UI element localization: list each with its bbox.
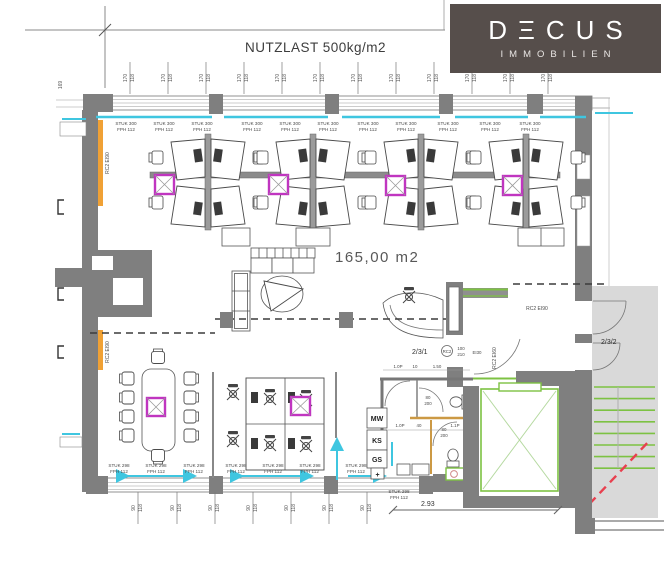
wall-label: FPH 112 — [117, 127, 135, 132]
wall-label: STUK 298 — [183, 463, 205, 468]
desk-cluster-small — [227, 378, 324, 470]
dim-label: 118 — [548, 74, 554, 82]
wall-label: STUK 300 — [191, 121, 213, 126]
dim-label: 118 — [434, 74, 440, 82]
load-note: NUTZLAST 500kg/m2 — [245, 40, 386, 55]
wall-label: STUK 298 — [145, 463, 167, 468]
dim-label: 170 — [161, 74, 167, 83]
appliance-label: + — [375, 472, 379, 479]
wall-label: FPH 112 — [397, 127, 415, 132]
fire-wall-label: RC2 EI90 — [105, 341, 111, 363]
dim-label: 118 — [244, 74, 250, 82]
wall-label: FPH 112 — [264, 469, 282, 474]
logo-subtitle: IMMOBILIEN — [501, 49, 617, 60]
dim-label: 200 — [424, 401, 432, 406]
floor-box-marker — [291, 397, 310, 415]
dim-label: 90 — [322, 505, 328, 511]
floor-box-marker — [155, 175, 174, 194]
dim-label: 118 — [215, 504, 221, 512]
wall-label: FPH 112 — [147, 469, 165, 474]
fire-wall-label: RC2 EI60 — [492, 347, 498, 369]
dim-label: 90 — [246, 505, 252, 511]
sofa — [251, 248, 315, 273]
dim-label: 90 — [360, 505, 366, 511]
wall-label: FPH 112 — [390, 495, 408, 500]
wall-label: STUK 300 — [395, 121, 417, 126]
dim-label: 170 — [503, 74, 509, 83]
dim-label: 118 — [206, 74, 212, 82]
dim-label: 90 — [170, 505, 176, 511]
dim-label: 1.0P — [395, 423, 404, 428]
floor-box-marker — [386, 176, 405, 195]
area-label: 165,00 m2 — [335, 249, 419, 266]
floor-box-marker — [503, 176, 522, 195]
wall-label: FPH 112 — [185, 469, 203, 474]
dim-label: 200 — [440, 433, 448, 438]
wall-label: STUK 300 — [357, 121, 379, 126]
wall-label: STUK 300 — [437, 121, 459, 126]
room-number: 2/3/1 — [412, 349, 428, 356]
toilet-icon — [447, 449, 459, 467]
wall-label: STUK 298 — [262, 463, 284, 468]
wall-label: FPH 112 — [281, 127, 299, 132]
dim-label: 40 — [417, 423, 422, 428]
dim-label: 118 — [168, 74, 174, 82]
shelf-unit — [232, 271, 250, 331]
reception-desk — [383, 287, 443, 338]
appliance-label: KS — [372, 438, 382, 445]
dim-label: 118 — [472, 74, 478, 82]
wall-label: STUK 300 — [279, 121, 301, 126]
wall-label: STUK 300 — [479, 121, 501, 126]
dim-label: 118 — [510, 74, 516, 82]
floor-plan-drawing: 170118 170118 170118 170118 170118 17011… — [0, 0, 664, 576]
dim-label: 170 — [199, 74, 205, 83]
dim-label: 118 — [130, 74, 136, 82]
door-fire-rating: EI30 — [472, 350, 482, 355]
fire-wall-label: RC2 EI90 — [105, 152, 111, 174]
rc2-badge: RC2 — [443, 349, 452, 354]
dim-label: 1.50 — [433, 364, 442, 369]
floor-box-marker — [147, 398, 165, 416]
dim-label: 90 — [208, 505, 214, 511]
dim-label: 170 — [237, 74, 243, 83]
wall-label: FPH 112 — [110, 469, 128, 474]
elevator — [463, 383, 576, 508]
dim-label: 170 — [465, 74, 471, 83]
dim-label: 170 — [123, 74, 129, 83]
dim-label: 170 — [541, 74, 547, 83]
floor-box-marker — [269, 175, 288, 194]
dim-label: 80 — [442, 427, 447, 432]
stuk-labels-top: STUK 300FPH 112 STUK 300FPH 112 STUK 300… — [115, 121, 541, 132]
appliance-label: GS — [372, 457, 382, 464]
wall-label: FPH 112 — [193, 127, 211, 132]
wall-label: STUK 300 — [153, 121, 175, 126]
dim-label: 170 — [427, 74, 433, 83]
dim-label: 118 — [396, 74, 402, 82]
dim-total-label: 2.93 — [421, 501, 435, 508]
wall-label: STUK 298 — [299, 463, 321, 468]
dim-label: 118 — [138, 504, 144, 512]
wall-label: FPH 112 — [439, 127, 457, 132]
wall-label: STUK 300 — [317, 121, 339, 126]
dim-label: 90 — [284, 505, 290, 511]
dim-label: 1.0P — [393, 364, 402, 369]
appliance-label: MW — [371, 416, 384, 423]
fire-wall-label: RC2 EI90 — [526, 306, 548, 312]
dim-label: 1.1P — [450, 423, 459, 428]
dim-label: 118 — [358, 74, 364, 82]
dim-label: 118 — [320, 74, 326, 82]
lounge-chair — [261, 276, 303, 312]
wall-label: STUK 300 — [241, 121, 263, 126]
elevator-door — [499, 383, 541, 391]
dim-label: 118 — [367, 504, 373, 512]
wall-label: FPH 112 — [155, 127, 173, 132]
wall-label: STUK 298 — [225, 463, 247, 468]
wall-label: FPH 112 — [347, 469, 365, 474]
wall-label: FPH 112 — [481, 127, 499, 132]
wall-label: FPH 112 — [359, 127, 377, 132]
bottom-dimension-ticks: 90118 90118 90118 90118 90118 90118 9011… — [131, 492, 373, 524]
wall-label: STUK 300 — [115, 121, 137, 126]
wall-label: STUK 298 — [345, 463, 367, 468]
door-dim: 210 — [457, 352, 465, 357]
room-number: 2/3/2 — [601, 339, 617, 346]
wall-label: FPH 112 — [319, 127, 337, 132]
dim-label: 80 — [426, 395, 431, 400]
dim-label: 169 — [58, 81, 64, 90]
decus-logo: DΞCUS IMMOBILIEN — [450, 4, 661, 73]
door-dim: 100 — [457, 346, 465, 351]
wall-label: FPH 112 — [301, 469, 319, 474]
dim-label: 10 — [413, 364, 418, 369]
dim-label: 170 — [351, 74, 357, 83]
dim-label: 90 — [131, 505, 137, 511]
wall-label: FPH 112 — [227, 469, 245, 474]
dim-label: 118 — [282, 74, 288, 82]
dim-label: 170 — [389, 74, 395, 83]
dim-label: 118 — [177, 504, 183, 512]
wall-label: FPH 112 — [243, 127, 261, 132]
dim-label: 118 — [253, 504, 259, 512]
dim-label: 118 — [291, 504, 297, 512]
wall-label: STUK 298 — [388, 489, 410, 494]
logo-brand: DΞCUS — [488, 17, 634, 43]
dim-label: 170 — [275, 74, 281, 83]
floor-plan-page: 170118 170118 170118 170118 170118 17011… — [0, 0, 664, 576]
dim-label: 118 — [329, 504, 335, 512]
wall-label: STUK 298 — [108, 463, 130, 468]
wall-label: FPH 112 — [521, 127, 539, 132]
dim-label: 170 — [313, 74, 319, 83]
wall-label: STUK 300 — [519, 121, 541, 126]
